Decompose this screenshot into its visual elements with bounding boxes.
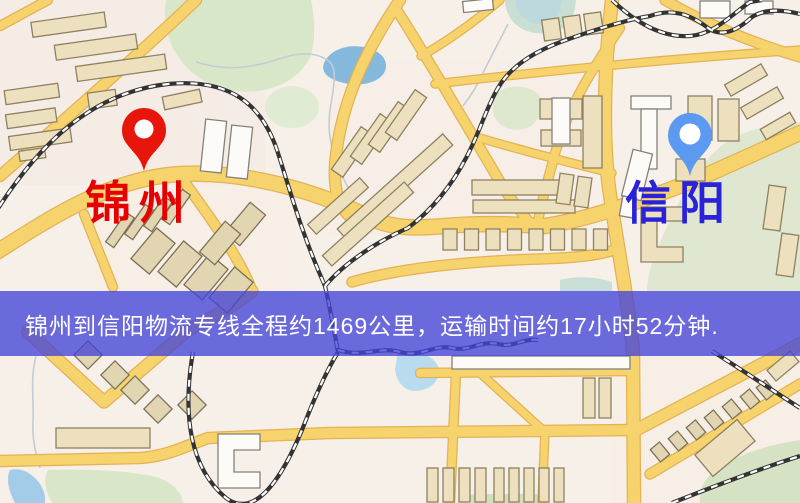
- logistics-route-map: 锦州 信阳 锦州到信阳物流专线全程约1469公里，运输时间约17小时52分钟.: [0, 0, 800, 503]
- origin-city-label: 锦州: [85, 178, 193, 229]
- destination-city-label: 信阳: [625, 178, 733, 229]
- route-info-banner: 锦州到信阳物流专线全程约1469公里，运输时间约17小时52分钟.: [0, 291, 800, 356]
- route-info-text: 锦州到信阳物流专线全程约1469公里，运输时间约17小时52分钟.: [25, 307, 719, 341]
- map-canvas: 锦州 信阳: [0, 0, 800, 503]
